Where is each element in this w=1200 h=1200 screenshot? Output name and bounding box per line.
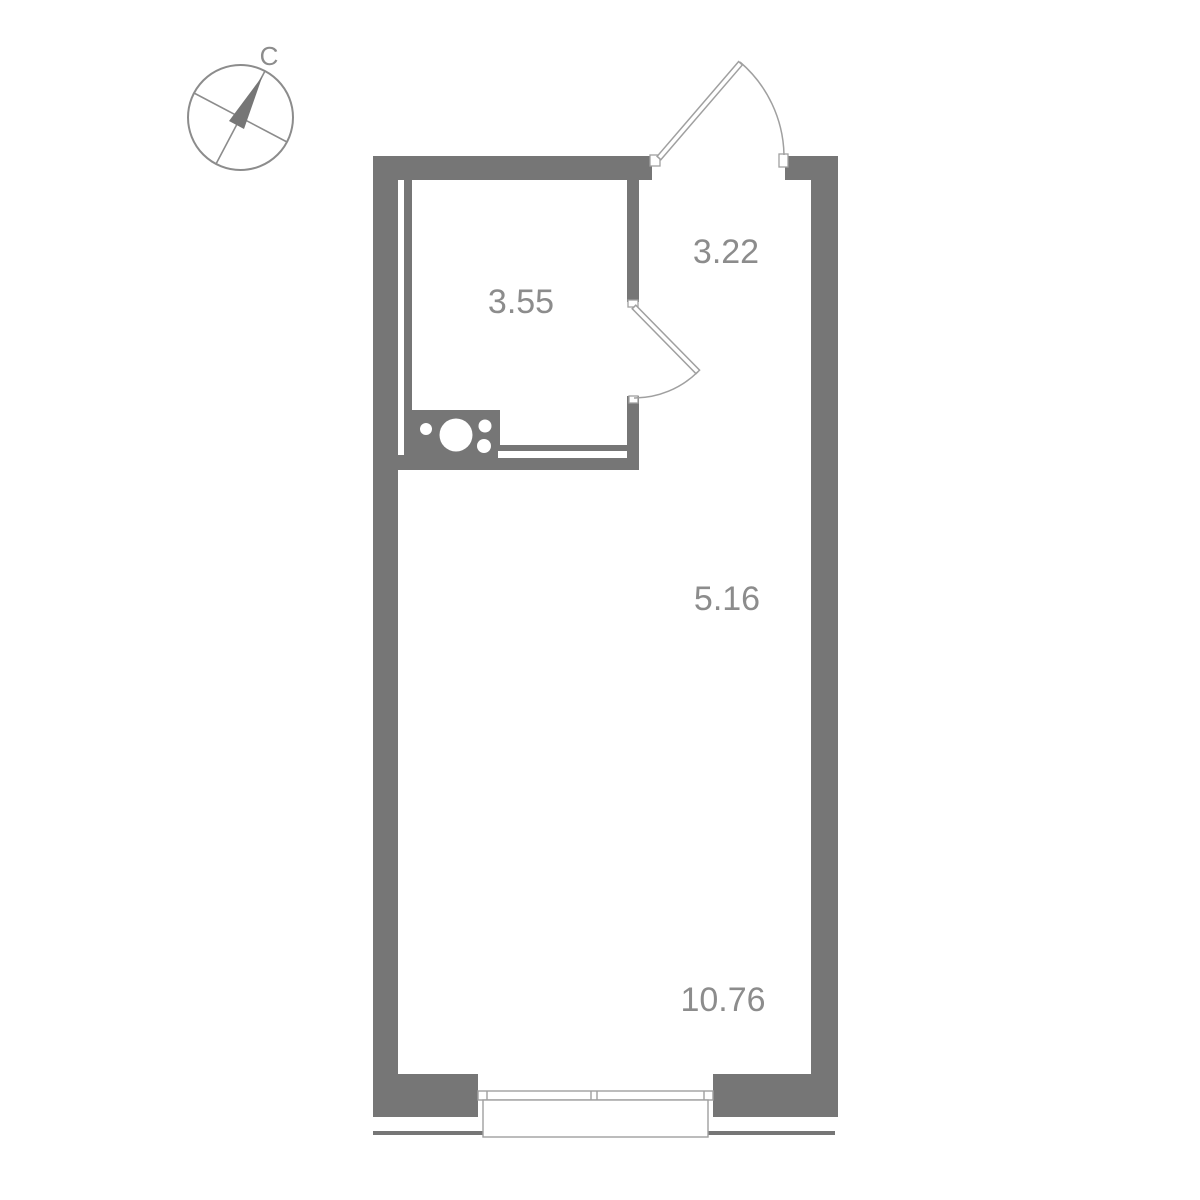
- bathroom-walls: [398, 178, 639, 470]
- living-zone-area-label: 10.76: [680, 981, 765, 1019]
- bathroom-partition-upper: [627, 178, 639, 302]
- left-wall: [373, 156, 398, 1117]
- kitchen-zone-area-label: 5.16: [694, 580, 760, 618]
- tap-icon: [479, 420, 492, 433]
- exterior-walls: [373, 156, 838, 1135]
- window: [478, 1091, 713, 1137]
- bottom-wall-right-block: [713, 1074, 838, 1117]
- entrance-door-swing-arc: [740, 62, 784, 155]
- bottom-wall-slit: [498, 451, 627, 458]
- entrance-door-leaf: [657, 62, 742, 160]
- sink-basin-icon: [440, 419, 473, 452]
- bathroom-door-jamb-lower: [629, 396, 638, 403]
- bathroom-door: [628, 300, 700, 403]
- entrance-door: [650, 62, 788, 167]
- bathroom-left-lining-wall: [404, 180, 412, 470]
- entrance-door-jamb-right: [779, 154, 788, 167]
- bathroom-door-swing-arc: [634, 372, 698, 398]
- faucet-icon: [420, 423, 432, 435]
- floor-plan-drawing: С 3.55 3.22 5.16 10.76: [0, 0, 1200, 1200]
- window-frame: [478, 1091, 713, 1100]
- hallway-area-label: 3.22: [693, 233, 759, 271]
- floor-plan-canvas: С 3.55 3.22 5.16 10.76: [0, 0, 1200, 1200]
- drain-icon: [477, 439, 491, 453]
- bottom-wall-left-block: [373, 1074, 478, 1117]
- compass-north-label: С: [260, 41, 279, 71]
- bathroom-area-label: 3.55: [488, 283, 554, 321]
- right-wall: [811, 156, 838, 1117]
- compass-north-needle-icon: [229, 76, 263, 129]
- top-wall-left-segment: [373, 156, 652, 180]
- compass-rose: С: [188, 41, 293, 170]
- window-sill-box: [483, 1100, 708, 1137]
- bathroom-door-leaf: [632, 305, 699, 373]
- area-labels: 3.55 3.22 5.16 10.76: [488, 233, 766, 1019]
